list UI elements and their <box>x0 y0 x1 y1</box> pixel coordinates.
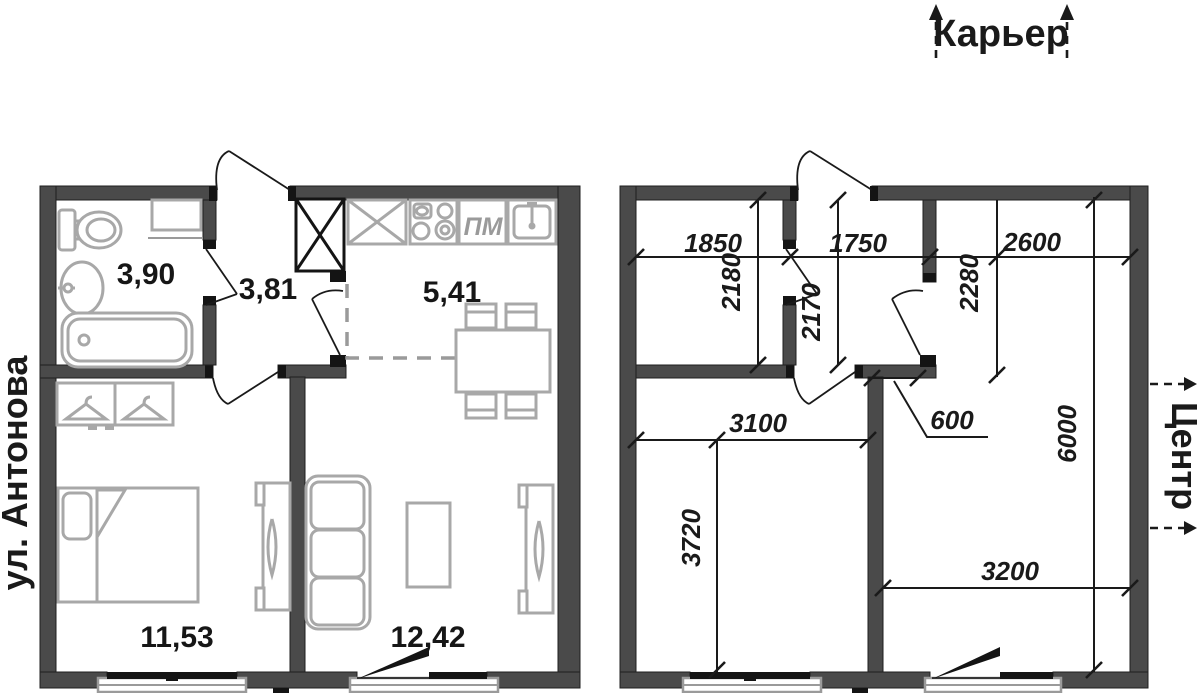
street-name-label: ул. Антонова <box>0 355 35 591</box>
dining-set-icon <box>456 304 550 418</box>
dim-living-width: 3200 <box>981 556 1039 586</box>
vent-shaft-icon <box>296 199 344 271</box>
area-label-bathroom: 3,90 <box>117 258 175 291</box>
area-label-kitchen: 5,41 <box>423 276 481 309</box>
dim-kitchen-width: 2600 <box>1002 227 1061 257</box>
area-label-hallway: 3,81 <box>239 273 297 306</box>
sofa-icon <box>306 476 370 629</box>
kitchen-door-swing <box>892 290 923 355</box>
dim-bathroom-depth: 2180 <box>716 253 746 312</box>
area-label-bedroom: 11,53 <box>140 621 213 654</box>
kitchen-door-swing <box>312 290 343 355</box>
tv-stand-icon <box>519 485 553 613</box>
bedroom-door-swing <box>794 372 855 404</box>
dim-bedroom-width: 3100 <box>729 408 787 438</box>
coffee-table-icon <box>407 503 450 587</box>
east-arrow-head <box>1184 377 1197 391</box>
dishwasher-icon: ПМ <box>459 200 506 244</box>
dim-wall-segment: 600 <box>930 405 974 435</box>
floorplan-svg: Карьер ул. Антонова Центр <box>0 0 1199 693</box>
kitchen-cabinet-icon <box>348 200 406 244</box>
toilet-icon <box>59 210 121 250</box>
dimension-plan: 1850 1750 2600 2180 2170 2280 3100 600 3… <box>620 151 1148 693</box>
bedroom-door-swing <box>213 372 278 404</box>
bed-icon <box>58 488 198 602</box>
dim-hallway-depth: 2170 <box>796 283 826 342</box>
street-label: ул. Антонова <box>0 355 35 591</box>
dishwasher-label: ПМ <box>464 213 504 241</box>
washbasin-icon <box>58 262 103 314</box>
dim-kitchen-depth: 2280 <box>954 254 984 313</box>
bedroom-window <box>98 672 246 692</box>
tv-stand-icon <box>256 483 290 610</box>
entrance-door-swing <box>797 151 872 190</box>
bathroom-cabinet-icon <box>148 200 203 238</box>
dim-total-depth: 6000 <box>1052 405 1082 463</box>
floorplan-canvas: Карьер ул. Антонова Центр <box>0 0 1199 693</box>
stove-icon <box>410 200 457 244</box>
area-label-living-room: 12,42 <box>390 621 465 654</box>
east-arrow-head <box>1184 521 1197 535</box>
furnished-plan: ПМ <box>40 151 580 693</box>
dim-bedroom-depth: 3720 <box>676 509 706 567</box>
wardrobe-icon <box>57 383 173 430</box>
direction-top-label: Карьер <box>933 13 1069 55</box>
dining-table-icon <box>456 330 550 392</box>
entrance-door-swing <box>216 151 290 190</box>
direction-top: Карьер <box>929 4 1074 58</box>
direction-right-label: Центр <box>1164 402 1199 510</box>
balcony-door-window <box>925 647 1061 692</box>
bathtub-icon <box>62 313 192 367</box>
kitchen-sink-icon <box>508 200 556 244</box>
bedroom-window <box>683 672 821 692</box>
dim-hallway-width: 1750 <box>829 228 887 258</box>
direction-right: Центр <box>1150 377 1199 535</box>
